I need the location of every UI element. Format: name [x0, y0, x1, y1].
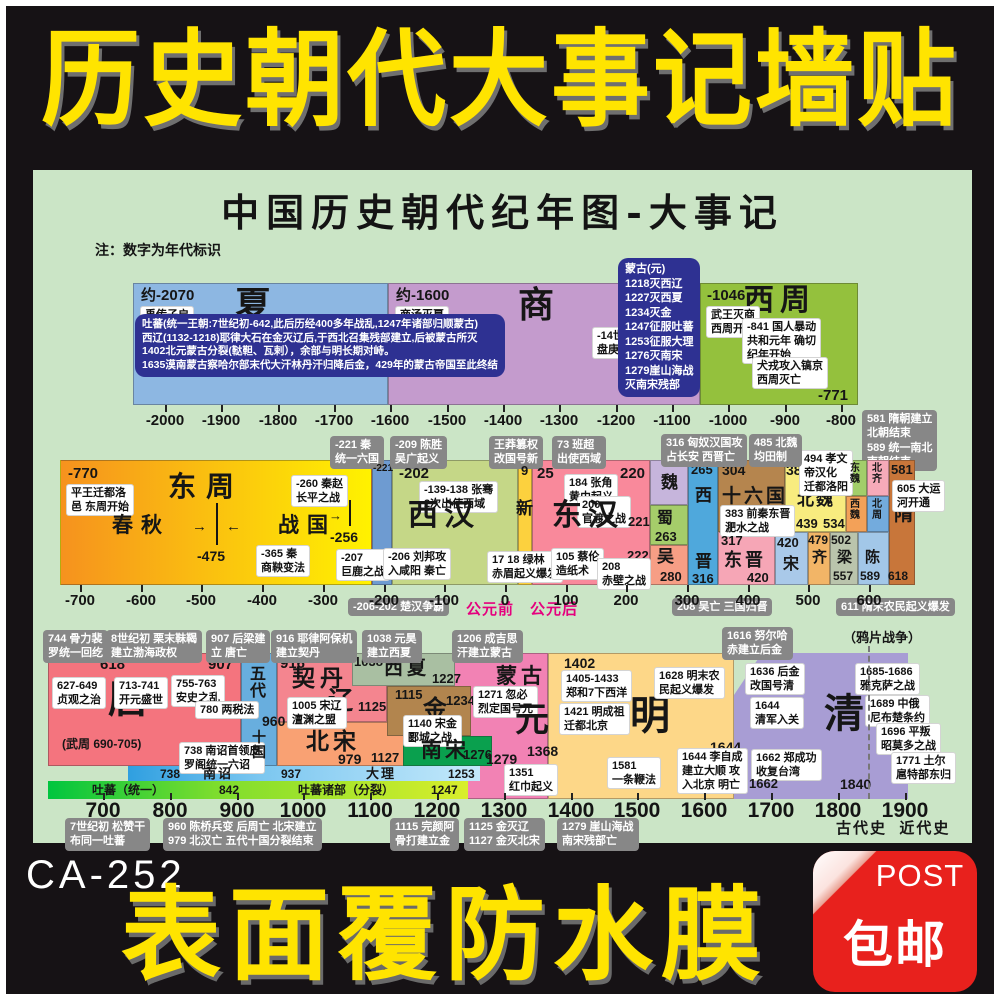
axis-tick	[808, 585, 810, 592]
year-label: 502	[831, 534, 851, 546]
label-yuan: 元	[515, 702, 549, 739]
axis-label: 200	[613, 593, 638, 608]
label-chen: 陈	[865, 550, 880, 566]
timeline-chart: 夏商西周约-2070约-1600-1046-771禹传子启 夏朝建立商汤灭夏 商…	[0, 0, 1000, 1000]
year-label: 557	[833, 570, 853, 582]
year-label: -770	[68, 466, 98, 481]
label-wudai: 五 代	[250, 666, 266, 701]
label-shiguo: 十 国	[252, 730, 266, 760]
year-label: 220	[620, 466, 645, 481]
opium-war-line	[868, 646, 870, 799]
axis-label: 100	[553, 593, 578, 608]
axis-tick	[323, 585, 325, 592]
event-box: 1005 宋辽 澶渊之盟	[287, 697, 347, 729]
axis-tick	[221, 405, 223, 412]
year-label: 1368	[527, 744, 558, 758]
year-label: 589	[860, 570, 880, 582]
label-nanqi: 齐	[812, 550, 827, 566]
axis-tick	[80, 585, 82, 592]
text-label: ←	[226, 518, 241, 536]
annotation-box: 744 骨力裴 罗统一回纥	[43, 630, 108, 663]
note-mongol-yuan: 蒙古(元) 1218灭西辽 1227灭西夏 1234灭金 1247征服吐蕃 12…	[618, 258, 700, 397]
event-box: 1771 土尔 扈特部东归	[891, 752, 956, 784]
axis-label: -100	[429, 593, 459, 608]
axis-tick	[278, 405, 280, 412]
axis-label: 1500	[614, 800, 661, 821]
year-label: 280	[660, 570, 682, 583]
annotation-box: 王莽篡权 改国号新	[489, 436, 543, 469]
label-tubo-split: 吐蕃诸部（分裂）	[298, 784, 394, 797]
axis-label: -500	[186, 593, 216, 608]
annotation-box: 1038 元昊 建立西夏	[362, 630, 422, 663]
label-dongjin: 东晋	[724, 551, 766, 570]
year-label: 1127	[371, 751, 399, 764]
event-box: 犬戎攻入镐京 西周灭亡	[752, 357, 828, 389]
annotation-box: 1616 努尔哈 赤建立后金	[722, 627, 793, 660]
event-box: 1421 明成祖 迁都北京	[559, 703, 630, 735]
axis-tick	[785, 405, 787, 412]
event-box: 1405-1433 郑和7下西洋	[561, 670, 632, 702]
annotation-box: 1125 金灭辽 1127 金灭北宋	[464, 818, 545, 851]
axis-tick	[201, 585, 203, 592]
axis-label: -400	[247, 593, 277, 608]
label-beizhou: 北 周	[872, 500, 882, 522]
axis-tick	[165, 405, 167, 412]
year-label: 979	[338, 752, 361, 766]
axis-label: 1800	[815, 800, 862, 821]
event-box: 1644 李自成 建立大顺 攻 入北京 明亡	[677, 748, 748, 794]
label-beiqi: 北 齐	[872, 464, 882, 486]
annotation-box: -209 陈胜 吴广起义	[390, 436, 447, 469]
annotation-box: 485 北魏 均田制	[749, 434, 802, 467]
year-label: 937	[281, 768, 301, 780]
year-label: 420	[777, 536, 799, 549]
axis-label: -1600	[371, 413, 409, 428]
axis-label: -1800	[259, 413, 297, 428]
year-label: 738	[160, 768, 180, 780]
text-label: →	[329, 508, 342, 524]
annotation-box: 8世纪初 栗末靺鞨 建立渤海政权	[106, 630, 202, 663]
axis-tick	[262, 585, 264, 592]
annotation-box: 316 匈奴汉国攻 占长安 西晋亡	[661, 434, 747, 467]
year-label: 581	[891, 463, 913, 476]
label-dongzhou: 东周	[168, 472, 244, 502]
axis-tick	[672, 405, 674, 412]
event-box: -206 刘邦攻 入咸阳 秦亡	[383, 548, 451, 580]
event-box: 627-649 贞观之治	[52, 677, 106, 709]
annotation-box: 907 后梁建 立 唐亡	[206, 630, 270, 663]
annotation-box: 73 班超 出使西域	[552, 436, 606, 469]
event-box: 208 赤壁之战	[597, 558, 651, 590]
year-label: -771	[818, 388, 848, 403]
year-label: 316	[692, 572, 714, 585]
axis-label: 900	[219, 800, 254, 821]
axis-tick	[626, 585, 628, 592]
label-nanzhao: 南诏	[203, 767, 233, 781]
axis-label: -700	[65, 593, 95, 608]
product-image: 历史朝代大事记墙贴 中国历史朝代纪年图-大事记 注：数字为年代标识 夏商西周约-…	[0, 0, 1000, 1000]
axis-label: 500	[795, 593, 820, 608]
event-box: -365 秦 商鞅变法	[256, 545, 310, 577]
year-label: 479	[808, 534, 828, 546]
label-shu: 蜀	[657, 510, 673, 527]
axis-tick	[447, 405, 449, 412]
year-label: 1253	[448, 768, 475, 780]
axis-label: 800	[152, 800, 187, 821]
badge-free-shipping-label: 包邮	[813, 905, 977, 977]
annotation-box: 1206 成吉思 汗建立蒙古	[452, 630, 523, 663]
axis-label: 1100	[347, 800, 393, 821]
axis-label: -1000	[709, 413, 747, 428]
axis-tick	[503, 405, 505, 412]
year-label: 1227	[432, 672, 461, 685]
year-label: 221	[628, 515, 650, 528]
axis-label: 600	[856, 593, 881, 608]
axis-label: 400	[735, 593, 760, 608]
axis-label: 1200	[414, 800, 461, 821]
year-label: 618	[888, 570, 908, 582]
label-liang: 梁	[837, 550, 852, 566]
label-dongwei: 东 魏	[850, 464, 860, 486]
label-xin: 新	[516, 500, 533, 518]
event-box: 1581 一条鞭法	[607, 757, 661, 789]
annotation-box: 916 耶律阿保机 建立契丹	[271, 630, 357, 663]
axis-label: -1200	[597, 413, 635, 428]
axis-tick	[444, 585, 446, 592]
year-label: 960	[262, 714, 285, 728]
label-xiwei: 西 魏	[850, 500, 860, 522]
label-donghan: 东汉	[552, 500, 624, 532]
axis-label: -1500	[428, 413, 466, 428]
axis-label: -2000	[146, 413, 184, 428]
event-box: 平王迁都洛 邑 东周开始	[66, 484, 134, 516]
axis-tick	[616, 405, 618, 412]
label-zhanguo: 战国	[278, 515, 336, 538]
label-ming: 明	[630, 695, 670, 738]
year-label: 439	[796, 517, 818, 530]
axis-label: -1300	[540, 413, 578, 428]
axis-tick	[384, 585, 386, 592]
event-box: 780 两税法	[195, 701, 259, 719]
year-label: 9	[521, 464, 528, 477]
axis-label: 1400	[548, 800, 595, 821]
annotation-box: 611 隋末农民起义爆发	[836, 598, 955, 616]
axis-label: 300	[674, 593, 699, 608]
label-liusong: 宋	[783, 556, 799, 573]
event-box: 1628 明末农 民起义爆发	[654, 667, 725, 699]
axis-label: 1300	[481, 800, 528, 821]
year-label: 25	[537, 466, 554, 481]
axis-tick	[841, 405, 843, 412]
label-nansong: 南宋	[421, 740, 469, 763]
axis-label: 700	[85, 800, 120, 821]
axis-label: -1700	[315, 413, 353, 428]
axis-tick	[559, 405, 561, 412]
axis-label: -1100	[653, 413, 691, 428]
year-label: -256	[330, 530, 358, 544]
event-box: 713-741 开元盛世	[114, 677, 168, 709]
divider-line	[349, 500, 351, 526]
label-xihan: 西汉	[408, 500, 480, 532]
year-label: 420	[747, 571, 769, 584]
year-label: 263	[655, 530, 677, 543]
axis-label: -200	[369, 593, 399, 608]
label-wei: 魏	[661, 474, 678, 492]
year-label: 约-2070	[141, 288, 194, 303]
era-history-label: 古代史 近代史	[836, 820, 950, 838]
event-box: -260 秦赵 长平之战	[291, 475, 348, 507]
year-label: 约-1600	[396, 288, 449, 303]
footer-slogan: 表面覆防水膜	[80, 883, 810, 990]
axis-tick	[141, 585, 143, 592]
year-label: -1046	[707, 288, 745, 303]
axis-label: 1700	[748, 800, 795, 821]
label-xijin-jin: 晋	[695, 553, 712, 571]
event-box: 494 孝文 帝汉化 迁都洛阳	[799, 450, 853, 496]
label-shang: 商	[518, 286, 554, 325]
event-box: -207 巨鹿之战	[336, 549, 390, 581]
year-label: 1115	[395, 688, 423, 701]
axis-label: 1600	[681, 800, 728, 821]
divider-line	[216, 503, 218, 545]
annotation-box: 1115 完颜阿 骨打建立金	[390, 818, 459, 851]
label-dali: 大理	[366, 767, 396, 781]
axis-label: -300	[308, 593, 338, 608]
label-chunqiu: 春秋	[112, 515, 170, 538]
axis-label: -900	[770, 413, 800, 428]
axis-label: -600	[126, 593, 156, 608]
axis-tick	[728, 405, 730, 412]
year-label: 1234	[446, 694, 475, 707]
event-box: 1696 平叛 昭莫多之战	[876, 723, 941, 755]
label-qing: 清	[824, 693, 864, 736]
axis-label: -1400	[484, 413, 522, 428]
annotation-box: 1279 崖山海战 南宋残部亡	[557, 818, 639, 851]
axis-tick	[687, 585, 689, 592]
text-label: →	[192, 518, 207, 536]
axis-label: 1000	[280, 800, 327, 821]
year-label: 1840	[840, 777, 871, 791]
event-box: 1644 清军入关	[750, 697, 804, 729]
event-box: 1636 后金 改国号清	[745, 663, 805, 695]
year-label: -202	[399, 466, 429, 481]
axis-label: 0	[501, 593, 509, 608]
note-tubo-xiliao-beiyuan: 吐蕃(统一王朝:7世纪初-642,此后历经400多年战乱,1247年诸部归顺蒙古…	[135, 314, 505, 377]
event-box: 1685-1686 雅克萨之战	[855, 663, 920, 695]
axis-label: 1900	[882, 800, 929, 821]
axis-tick	[748, 585, 750, 592]
year-label: -475	[197, 549, 225, 563]
year-label: 1247	[431, 784, 458, 796]
text-label: (武周 690-705)	[62, 737, 141, 751]
year-label: 1662	[749, 777, 778, 790]
axis-tick	[390, 405, 392, 412]
label-xijin-xi: 西	[695, 487, 712, 505]
year-label: 534	[823, 517, 845, 530]
axis-label: -1900	[202, 413, 240, 428]
annotation-box: 7世纪初 松赞干 布同一吐蕃	[65, 818, 150, 851]
annotation-box: 960 陈桥兵变 后周亡 北宋建立 979 北汉亡 五代十国分裂结束	[163, 818, 322, 851]
event-box: 605 大运 河开通	[892, 480, 945, 512]
badge-post-label: POST	[868, 858, 972, 894]
opium-war-label: （鸦片战争）	[843, 630, 921, 646]
axis-tick	[334, 405, 336, 412]
year-label: 1125	[358, 700, 386, 713]
axis-tick	[869, 585, 871, 592]
axis-tick	[505, 585, 507, 592]
event-box: 1351 红巾起义	[504, 764, 558, 796]
year-label: 317	[721, 534, 743, 547]
axis-tick	[566, 585, 568, 592]
year-label: 1402	[564, 656, 595, 670]
axis-label: -800	[826, 413, 856, 428]
label-wu: 吴	[657, 548, 674, 566]
